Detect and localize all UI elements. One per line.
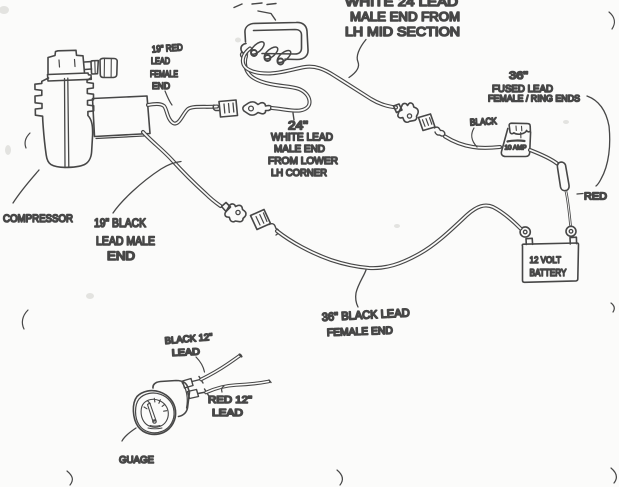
svg-text:LH MID SECTION: LH MID SECTION [345,24,460,39]
svg-text:COMPRESSOR: COMPRESSOR [3,213,73,225]
svg-text:BLACK 12": BLACK 12" [164,332,213,347]
svg-text:36": 36" [509,70,528,82]
svg-text:10 AMP: 10 AMP [505,145,527,152]
svg-text:GUAGE: GUAGE [119,455,154,466]
svg-text:MALE END FROM: MALE END FROM [350,10,460,24]
svg-text:36" BLACK LEAD: 36" BLACK LEAD [322,307,411,324]
svg-text:LEAD MALE: LEAD MALE [96,236,155,248]
svg-text:FEMALE END: FEMALE END [327,325,394,339]
svg-text:LEAD: LEAD [212,407,243,419]
svg-text:FEMALE: FEMALE [150,69,178,79]
svg-text:MALE END: MALE END [274,143,325,155]
svg-text:LH CORNER: LH CORNER [271,168,327,179]
svg-text:END: END [152,81,170,92]
svg-text:END: END [107,249,135,263]
svg-text:BLACK: BLACK [470,116,498,128]
svg-text:19" RED: 19" RED [151,42,183,55]
svg-text:WHITE 24 LEAD: WHITE 24 LEAD [345,0,458,9]
svg-text:WHITE LEAD: WHITE LEAD [271,132,333,144]
svg-text:FEMALE / RING ENDS: FEMALE / RING ENDS [488,94,580,105]
svg-text:19" BLACK: 19" BLACK [94,218,146,230]
svg-text:12 VOLT: 12 VOLT [530,255,562,266]
svg-text:FROM LOWER: FROM LOWER [268,155,338,167]
svg-text:RED 12": RED 12" [208,394,252,406]
svg-text:LEAD: LEAD [151,56,170,66]
svg-text:RED: RED [584,191,607,203]
svg-text:BATTERY: BATTERY [530,268,567,279]
